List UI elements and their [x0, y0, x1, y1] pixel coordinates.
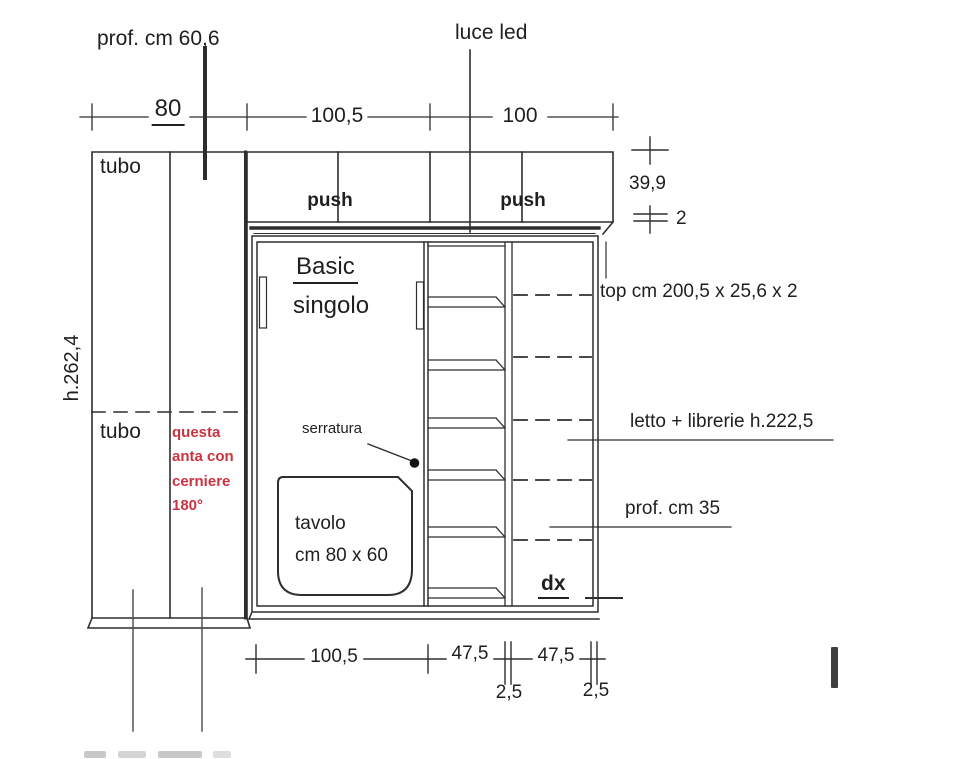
bottom-offset-2-5-a: 2,5 — [496, 682, 522, 703]
right-dim-2: 2 — [676, 208, 687, 229]
prof-top-label: prof. cm 60,6 — [97, 27, 220, 51]
serratura-lock-dot — [410, 458, 420, 468]
basic-subtitle-label: singolo — [293, 293, 369, 320]
bottom-offset-2-5-b: 2,5 — [583, 680, 609, 701]
right-column-dashes — [514, 295, 591, 540]
right-dim-39-9: 39,9 — [629, 173, 666, 194]
dx-side-marker: dx — [538, 572, 569, 599]
bottom-dim-47-5-a: 47,5 — [452, 643, 489, 664]
bottom-dim-47-5-b: 47,5 — [538, 645, 575, 666]
push-right-label: push — [500, 190, 545, 211]
table-outline — [278, 477, 412, 595]
lock-leader — [368, 444, 419, 468]
wardrobe-technical-drawing: prof. cm 60,6 80 100,5 100 luce led tubo… — [0, 0, 970, 759]
height-total-label: h.262,4 — [61, 335, 83, 402]
depth-note: prof. cm 35 — [625, 498, 720, 519]
door-hinge-note: questa anta con cerniere 180° — [172, 421, 250, 518]
bed-bookcase-note: letto + librerie h.222,5 — [630, 411, 813, 432]
tavolo-label-line1: tavolo — [295, 513, 346, 534]
basic-title-label: Basic — [293, 254, 358, 284]
serratura-label: serratura — [302, 421, 362, 438]
top-dim-80: 80 — [152, 96, 185, 126]
top-dim-100-5: 100,5 — [311, 104, 364, 128]
luce-led-label: luce led — [455, 21, 527, 45]
upper-cabinets-outline — [247, 152, 613, 234]
shelf-column — [428, 242, 512, 606]
text-cursor-artifact — [831, 647, 838, 688]
top-panel-note: top cm 200,5 x 25,6 x 2 — [600, 281, 798, 302]
top-dim-100: 100 — [502, 104, 537, 128]
tavolo-label-line2: cm 80 x 60 — [295, 545, 388, 566]
bottom-dim-100-5: 100,5 — [310, 646, 358, 667]
tubo-top-label: tubo — [100, 155, 141, 179]
push-left-label: push — [307, 190, 352, 211]
tubo-bottom-label: tubo — [100, 420, 141, 444]
